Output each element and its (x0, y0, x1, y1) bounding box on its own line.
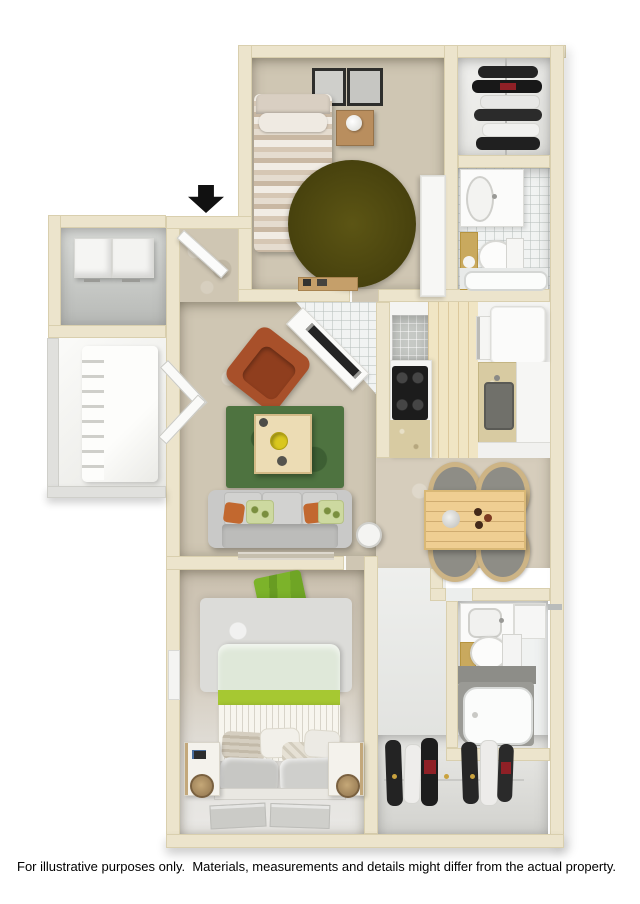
closet1-clothes-6-red (501, 762, 511, 774)
kitchen-sink (484, 382, 514, 430)
coffee-table-pot-2 (277, 456, 287, 466)
washer (74, 238, 112, 278)
dining-cup-1 (474, 508, 482, 516)
wall-bedroom2-closet-divider (444, 45, 458, 302)
shelf-item-1 (303, 279, 311, 286)
sofa-back (222, 524, 338, 548)
patio-lounge-chair-slats (82, 348, 104, 480)
patio-wall-left (47, 338, 59, 498)
twin-bed-headboard (256, 94, 330, 114)
closet2-clothes-4 (474, 109, 542, 121)
sofa-pillow-print-2 (318, 500, 344, 524)
phone-on-nightstand (192, 750, 206, 759)
closet1-hanger-hook-1 (392, 774, 397, 779)
closet1-clothes-1 (385, 740, 403, 807)
wall-bedroom1-right (364, 556, 378, 834)
washer-vent (84, 279, 100, 282)
range-cooktop (392, 366, 428, 420)
bedroom1-wall-picture (168, 650, 180, 700)
closet1-clothes-3-red (424, 760, 436, 774)
wall-right-outer (550, 45, 564, 848)
dryer (112, 238, 154, 278)
bathroom2-sink (466, 176, 494, 222)
bathroom1-window (548, 604, 562, 610)
dining-cup-3 (475, 521, 483, 529)
wall-bedroom2-left (238, 45, 252, 302)
coffee-table-yellow-bowl (270, 432, 288, 450)
closet1-clothes-4 (461, 742, 479, 805)
bedroom1-door-threshold (344, 556, 366, 570)
pantry-floor (392, 315, 428, 360)
closet2-clothes-5 (482, 123, 540, 137)
closet2-clothes-red-logo (500, 83, 516, 90)
table-lamp-right (336, 774, 360, 798)
wall-bottom-outer (166, 834, 564, 848)
closet1-clothes-2 (403, 744, 422, 805)
coffee-table-pot-1 (259, 418, 268, 427)
wall-storage-bottom (48, 325, 166, 338)
foot-mat-1 (209, 803, 266, 830)
bathroom1-toilet-tank (502, 634, 522, 668)
shelf-item-2 (317, 279, 327, 286)
kitchen-tile-floor (428, 302, 478, 458)
wall-top-outer (238, 45, 566, 58)
patio-wall-bottom (47, 486, 166, 498)
bathroom1-tub-drain (472, 712, 478, 718)
sofa-runner-rug (238, 552, 334, 560)
wall-bathroom1-top-left (430, 588, 446, 601)
closet2-clothes-1 (478, 66, 538, 78)
dining-cup-2 (484, 514, 492, 522)
kitchen-corner-counter (390, 420, 430, 458)
wall-kitchen-living-divider (376, 302, 390, 458)
kitchen-faucet (494, 375, 500, 381)
bathroom2-accent-stool (463, 256, 475, 268)
entry-arrow-icon (188, 185, 224, 213)
wall-storage-top (48, 215, 166, 228)
closet2-clothes-3 (480, 95, 540, 109)
wall-bathroom1-left (446, 601, 458, 748)
bathroom1-door-threshold (446, 588, 472, 601)
sofa-pillow-print-1 (246, 500, 274, 524)
queen-bed-headboard (214, 788, 346, 800)
kitchen-bottom-cabinet (478, 442, 550, 458)
wall-storage-left (48, 215, 61, 338)
twin-bed-pillow (259, 113, 327, 132)
closet1-clothes-5 (480, 740, 498, 806)
wall-bathroom1-top-right (472, 588, 550, 601)
bathroom1-faucet (499, 618, 504, 623)
dryer-vent (122, 279, 140, 282)
refrigerator (490, 306, 546, 364)
nightstand-lamp (346, 115, 362, 131)
bathroom1-sink (468, 608, 502, 638)
floorplan-image: For illustrative purposes only. Material… (0, 0, 640, 904)
table-lamp-left (190, 774, 214, 798)
foot-mat-2 (270, 803, 331, 829)
wall-left-outer (166, 216, 180, 848)
sofa-pillow-orange-1 (223, 502, 246, 525)
wall-entry-top (166, 216, 252, 229)
disclaimer-text: For illustrative purposes only. Material… (17, 859, 637, 875)
bathroom2-bathtub-basin (464, 271, 548, 291)
bathroom2-faucet (492, 194, 497, 199)
round-olive-rug (288, 160, 416, 288)
dining-table (424, 490, 526, 550)
dining-centerpiece (442, 510, 460, 528)
closet2-clothes-6 (476, 137, 540, 150)
closet1-hanger-hook-3 (470, 774, 475, 779)
closet1-hanger-hook-2 (444, 774, 449, 779)
queen-bed-duvet (218, 644, 340, 694)
wall-art-frame-2 (347, 68, 383, 106)
bedroom2-wardrobe (420, 175, 446, 297)
round-side-table (356, 522, 382, 548)
wall-closet2-bath2-divider (458, 155, 550, 168)
